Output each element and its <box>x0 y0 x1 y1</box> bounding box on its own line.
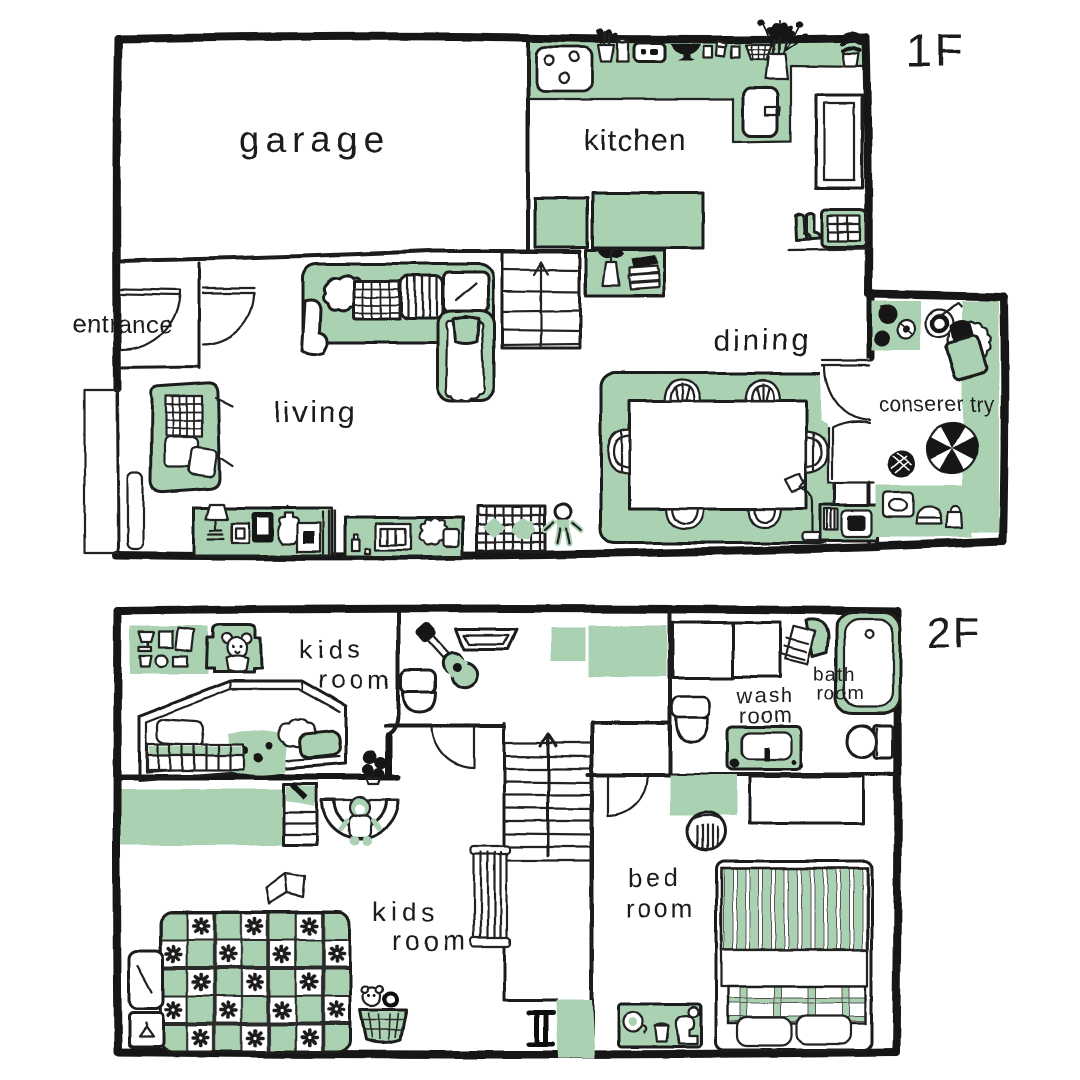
svg-text:entrance: entrance <box>72 311 173 339</box>
svg-text:room: room <box>392 926 470 956</box>
svg-text:bath: bath <box>813 664 856 685</box>
svg-text:dining: dining <box>713 324 811 357</box>
svg-text:conserer try: conserer try <box>878 393 995 416</box>
svg-text:1F: 1F <box>906 24 966 76</box>
svg-text:2F: 2F <box>928 609 981 656</box>
svg-text:kids: kids <box>372 897 440 927</box>
svg-text:room: room <box>625 893 696 923</box>
svg-text:room: room <box>740 705 792 728</box>
svg-text:living: living <box>274 396 357 429</box>
svg-text:kitchen: kitchen <box>584 124 686 157</box>
svg-text:room: room <box>318 664 393 694</box>
svg-text:garage: garage <box>239 119 390 160</box>
svg-text:bed: bed <box>627 862 682 892</box>
svg-text:room: room <box>817 683 864 704</box>
svg-text:kids: kids <box>299 634 365 664</box>
